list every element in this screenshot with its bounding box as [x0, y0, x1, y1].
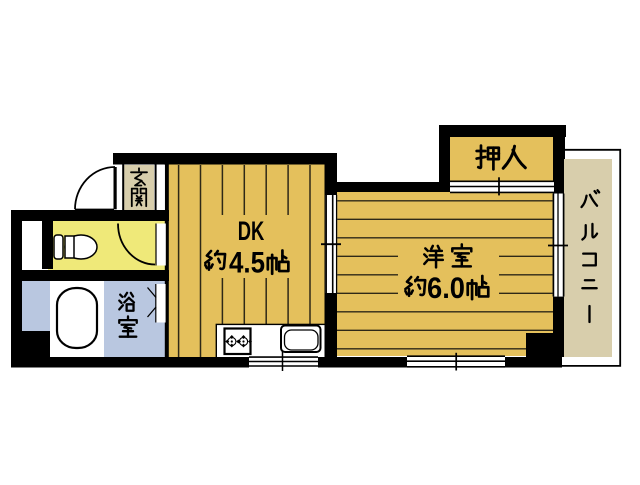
svg-text:4.5: 4.5	[229, 246, 265, 279]
svg-text:DK: DK	[238, 216, 265, 246]
svg-text:6.0: 6.0	[427, 272, 465, 305]
